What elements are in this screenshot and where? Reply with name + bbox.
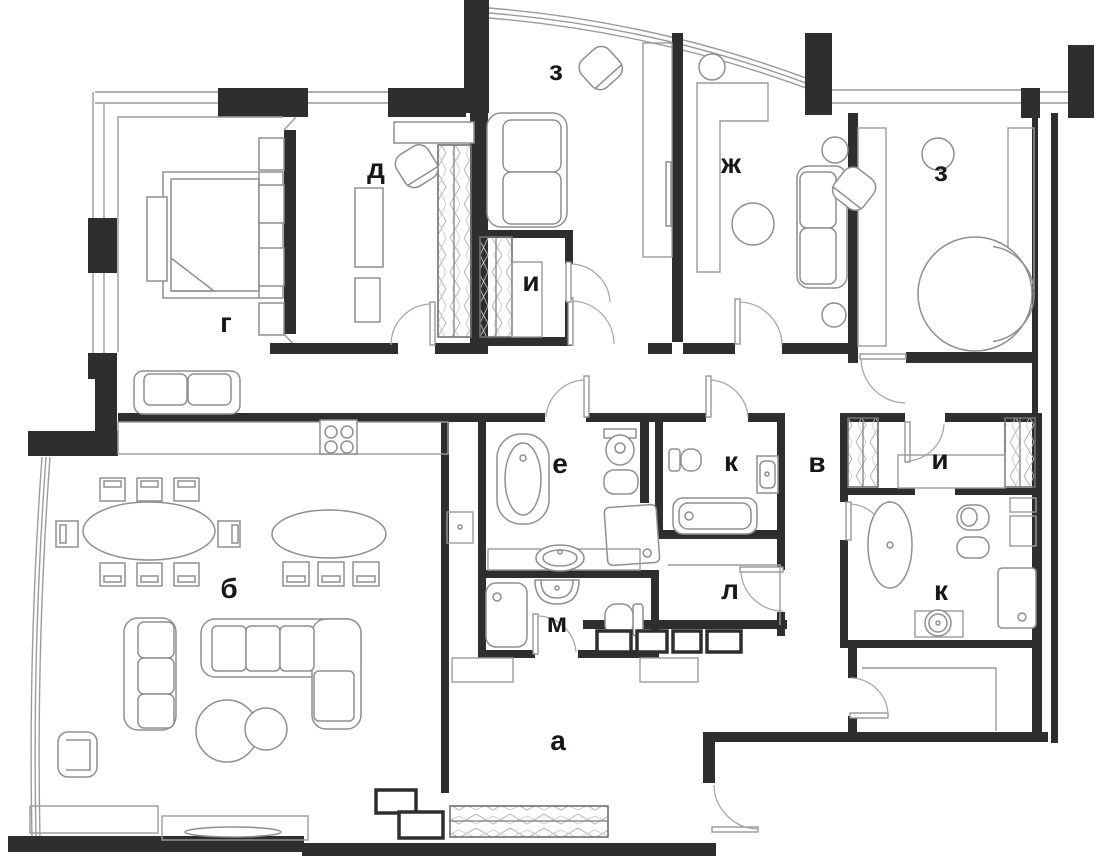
floor-plan: з д ж з г и е к в и б л к м а: [0, 0, 1098, 858]
furniture-utility-room: [862, 668, 996, 731]
floor-plan-drawing: з д ж з г и е к в и б л к м а: [0, 0, 1098, 858]
dresser: [147, 197, 167, 281]
bench: [640, 658, 698, 682]
room-label-bathroom-k-top: к: [724, 446, 739, 477]
room-label-storage-l: л: [721, 574, 739, 605]
furniture-living-b: [30, 420, 473, 840]
toilet: [669, 449, 701, 471]
sink: [757, 456, 778, 493]
shower-tray: [998, 568, 1036, 628]
shelf: [858, 128, 886, 346]
bathtub: [486, 583, 527, 647]
nightstand: [259, 185, 284, 223]
wardrobe-hall: [450, 806, 608, 837]
shower-tray: [604, 504, 660, 565]
mirror: [666, 162, 671, 226]
nightstand: [259, 248, 284, 286]
room-label-bedroom-z-right: з: [934, 156, 948, 187]
round-bed: [918, 237, 1034, 351]
dining-table: [56, 478, 240, 586]
bidet: [604, 470, 638, 494]
bench: [452, 658, 513, 682]
sink: [915, 610, 963, 637]
tv-console: [30, 806, 308, 840]
furniture-bathroom-k-right: [868, 498, 1036, 637]
bidet: [957, 537, 989, 558]
wardrobe-closet-right-a: [848, 418, 878, 487]
stool: [822, 137, 848, 163]
nightstand: [259, 138, 284, 170]
wardrobe-closet-top: [480, 237, 512, 337]
room-label-bathroom-m: м: [547, 607, 568, 638]
furniture-bedroom-g: [134, 138, 284, 414]
toilet: [957, 505, 989, 530]
stool: [699, 54, 725, 80]
toilet: [604, 429, 636, 465]
bathtub: [497, 434, 549, 524]
bathtub: [673, 498, 757, 534]
room-label-room-zh: ж: [720, 148, 742, 179]
sofa-two-seat: [134, 371, 240, 414]
counter-outline: [862, 668, 996, 731]
room-label-bathroom-k-right: к: [934, 575, 949, 606]
round-table: [732, 203, 774, 245]
shoe-cabinet-row: [597, 631, 741, 652]
nightstand: [259, 303, 284, 335]
armchair: [58, 732, 97, 777]
cabinet: [355, 188, 383, 267]
cabinet: [355, 278, 380, 322]
wardrobe-study: [438, 145, 471, 337]
kitchen-counter: [118, 420, 448, 454]
room-label-closet-i-top: и: [522, 266, 539, 297]
oval-bathtub: [868, 502, 912, 588]
coffee-table: [245, 708, 287, 750]
sink: [535, 580, 579, 604]
wardrobe-closet-right-b: [1005, 418, 1035, 487]
sofa-straight: [124, 618, 176, 730]
room-label-living-b: б: [220, 573, 237, 604]
furniture-bathroom-e: [488, 429, 660, 571]
room-label-bathroom-e: е: [552, 448, 568, 479]
furniture-bedroom-z-left: [487, 42, 672, 337]
room-label-closet-i-right: и: [931, 444, 948, 475]
room-label-bedroom-z-left: з: [549, 55, 563, 86]
wall-cabinet: [447, 512, 473, 543]
desk: [394, 122, 474, 143]
stool: [822, 303, 846, 327]
bar-table: [272, 510, 386, 586]
room-label-bedroom-g: г: [220, 307, 232, 338]
armchair: [575, 42, 627, 94]
furniture-bedroom-z-right: [828, 128, 1034, 351]
room-label-hall-a: а: [550, 725, 566, 756]
room-label-corridor-v: в: [808, 447, 825, 478]
room-label-study-d: д: [367, 153, 385, 184]
sofa: [487, 113, 567, 227]
desk-chair: [391, 141, 442, 192]
